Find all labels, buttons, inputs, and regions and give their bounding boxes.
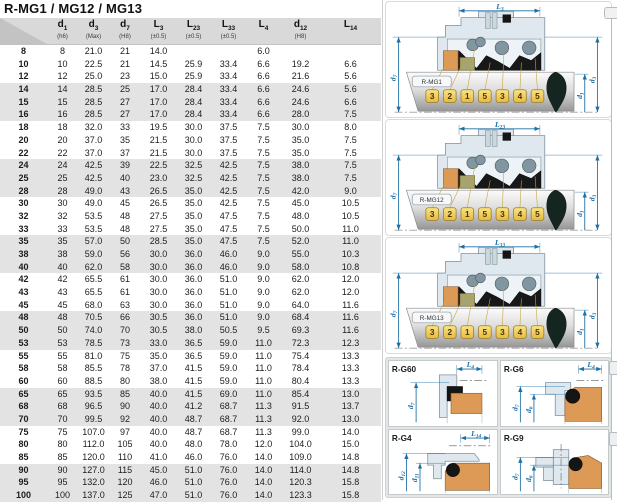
table-cell: 13.0 bbox=[320, 388, 381, 401]
table-cell: 48.7 bbox=[176, 426, 211, 439]
svg-text:5: 5 bbox=[483, 92, 488, 101]
table-cell: 120.0 bbox=[78, 451, 109, 464]
table-cell: 85 bbox=[47, 451, 78, 464]
table-cell: 35 bbox=[109, 134, 141, 147]
table-cell: 23 bbox=[109, 70, 141, 83]
table-cell: 38.0 bbox=[141, 375, 176, 388]
row-size-header: 12 bbox=[0, 70, 47, 83]
table-cell: 10.5 bbox=[320, 210, 381, 223]
table-cell: 26.5 bbox=[141, 185, 176, 198]
table-cell: 9.0 bbox=[246, 299, 281, 312]
table-cell: 12 bbox=[47, 70, 78, 83]
table-cell: 9.0 bbox=[246, 273, 281, 286]
table-cell: 6.0 bbox=[246, 45, 281, 58]
table-cell: 11.0 bbox=[246, 388, 281, 401]
table-cell: 15.8 bbox=[320, 476, 381, 489]
table-cell: 32 bbox=[47, 210, 78, 223]
svg-text:4: 4 bbox=[518, 210, 523, 219]
diagrams-section: R-MG1 3 2 1 5 3 4 5 L3 d7 bbox=[384, 0, 617, 500]
table-cell: 41.5 bbox=[176, 375, 211, 388]
table-cell: 11.3 bbox=[246, 400, 281, 413]
table-cell: 36.5 bbox=[176, 337, 211, 350]
table-cell: 120 bbox=[109, 476, 141, 489]
table-cell: 24 bbox=[47, 159, 78, 172]
set-screw bbox=[503, 15, 511, 23]
table-cell: 28.4 bbox=[176, 96, 211, 109]
table-cell: 48.0 bbox=[176, 438, 211, 451]
table-cell: 49.0 bbox=[78, 197, 109, 210]
table-cell: 43 bbox=[47, 286, 78, 299]
table-cell: 85.5 bbox=[78, 362, 109, 375]
table-row: 9595132.012046.051.076.014.0120.315.8 bbox=[0, 476, 381, 489]
column-header-d3: d3(Max) bbox=[78, 18, 109, 45]
table-cell: 32.0 bbox=[78, 121, 109, 134]
table-cell: 7.5 bbox=[246, 147, 281, 160]
table-cell: 17.0 bbox=[141, 83, 176, 96]
set-screw bbox=[503, 251, 511, 259]
table-cell: 90 bbox=[47, 464, 78, 477]
table-cell: 63 bbox=[109, 299, 141, 312]
table-cell: 120.3 bbox=[281, 476, 320, 489]
table-cell: 53.5 bbox=[78, 223, 109, 236]
table-cell: 85 bbox=[109, 388, 141, 401]
table-row: 323253.54827.535.047.57.548.010.5 bbox=[0, 210, 381, 223]
row-size-header: 53 bbox=[0, 337, 47, 350]
table-cell: 6.6 bbox=[246, 58, 281, 71]
table-cell: 62.0 bbox=[281, 286, 320, 299]
svg-text:d3: d3 bbox=[587, 312, 597, 319]
table-cell bbox=[176, 45, 211, 58]
table-cell: 51.0 bbox=[211, 286, 246, 299]
table-cell: 46.0 bbox=[141, 476, 176, 489]
table-cell: 37.0 bbox=[78, 147, 109, 160]
table-cell: 97 bbox=[109, 426, 141, 439]
table-cell: 7.5 bbox=[246, 185, 281, 198]
table-row: 585885.57837.041.559.011.078.413.3 bbox=[0, 362, 381, 375]
row-size-header: 45 bbox=[0, 299, 47, 312]
detail-label: R-G6 bbox=[503, 365, 523, 374]
table-cell: 16 bbox=[47, 108, 78, 121]
table-cell: 78 bbox=[109, 362, 141, 375]
table-cell: 14.0 bbox=[246, 451, 281, 464]
table-cell: 15 bbox=[47, 96, 78, 109]
table-cell: 21.5 bbox=[141, 147, 176, 160]
table-cell: 46.0 bbox=[211, 248, 246, 261]
svg-text:L33: L33 bbox=[494, 238, 505, 248]
table-cell: 35.0 bbox=[281, 134, 320, 147]
table-cell: 68 bbox=[47, 400, 78, 413]
row-size-header: 15 bbox=[0, 96, 47, 109]
table-cell: 76.0 bbox=[211, 451, 246, 464]
table-cell: 58 bbox=[109, 261, 141, 274]
table-cell: 53.5 bbox=[78, 210, 109, 223]
row-size-header: 20 bbox=[0, 134, 47, 147]
row-size-header: 60 bbox=[0, 375, 47, 388]
table-cell: 13.3 bbox=[320, 362, 381, 375]
row-size-header: 80 bbox=[0, 438, 47, 451]
table-row: 656593.58540.041.569.011.085.413.0 bbox=[0, 388, 381, 401]
seat-detail-diagrams: R-G60 L4 d7 bbox=[385, 357, 612, 498]
svg-text:4: 4 bbox=[518, 92, 523, 101]
item-number-tags: 3 2 1 5 3 4 5 bbox=[426, 326, 544, 339]
table-cell: 21 bbox=[109, 58, 141, 71]
table-cell: 6.6 bbox=[246, 96, 281, 109]
table-cell: 45.0 bbox=[141, 464, 176, 477]
table-cell: 14.0 bbox=[246, 476, 281, 489]
table-cell: 88.5 bbox=[78, 375, 109, 388]
table-row: 505074.07030.538.050.59.569.311.6 bbox=[0, 324, 381, 337]
table-cell: 80 bbox=[47, 438, 78, 451]
table-row: 101022.52114.525.933.46.619.26.6 bbox=[0, 58, 381, 71]
svg-text:d7: d7 bbox=[406, 402, 416, 409]
table-cell: 6.6 bbox=[246, 108, 281, 121]
row-size-header: 24 bbox=[0, 159, 47, 172]
table-cell: 37.5 bbox=[211, 147, 246, 160]
table-cell: 25.0 bbox=[78, 70, 109, 83]
column-header-L14: L14 bbox=[320, 18, 381, 45]
table-cell: 13.7 bbox=[320, 400, 381, 413]
table-cell: 50.5 bbox=[211, 324, 246, 337]
table-cell: 9.0 bbox=[246, 261, 281, 274]
svg-text:d3: d3 bbox=[587, 76, 597, 83]
table-row: 535378.57333.036.559.011.072.312.3 bbox=[0, 337, 381, 350]
table-cell: 33 bbox=[109, 121, 141, 134]
table-cell: 33.4 bbox=[211, 108, 246, 121]
table-cell: 38.0 bbox=[176, 324, 211, 337]
table-cell: 19.2 bbox=[281, 58, 320, 71]
dim-right-d3: d3 bbox=[587, 273, 597, 348]
table-cell: 60 bbox=[47, 375, 78, 388]
table-row: 242442.53922.532.542.57.538.07.5 bbox=[0, 159, 381, 172]
svg-text:d11: d11 bbox=[410, 472, 420, 481]
dim-right-d3: d3 bbox=[587, 155, 597, 230]
svg-text:d1: d1 bbox=[575, 328, 585, 335]
item-number-tags: 3 2 1 5 3 4 5 bbox=[426, 90, 544, 103]
svg-text:5: 5 bbox=[483, 210, 488, 219]
table-cell: 13.3 bbox=[320, 375, 381, 388]
table-cell: 13.3 bbox=[320, 350, 381, 363]
table-cell: 12.0 bbox=[320, 286, 381, 299]
table-cell: 12.3 bbox=[320, 337, 381, 350]
table-cell: 70.5 bbox=[78, 311, 109, 324]
table-cell: 132.0 bbox=[78, 476, 109, 489]
table-cell: 30.0 bbox=[176, 147, 211, 160]
table-cell: 85.4 bbox=[281, 388, 320, 401]
table-cell: 42.5 bbox=[211, 159, 246, 172]
table-row: 353557.05028.535.047.57.552.011.0 bbox=[0, 235, 381, 248]
table-cell: 65 bbox=[47, 388, 78, 401]
table-cell: 68.0 bbox=[78, 299, 109, 312]
row-size-header: 42 bbox=[0, 273, 47, 286]
row-size-header: 58 bbox=[0, 362, 47, 375]
table-cell: 92 bbox=[109, 413, 141, 426]
adjacent-panel-tab bbox=[604, 7, 617, 19]
row-size-header: 55 bbox=[0, 350, 47, 363]
table-cell: 7.5 bbox=[320, 134, 381, 147]
row-size-header: 32 bbox=[0, 210, 47, 223]
table-cell: 6.6 bbox=[246, 70, 281, 83]
table-row: 181832.03319.530.037.57.530.08.0 bbox=[0, 121, 381, 134]
rg6-diagram: R-G6 L4 d7 bbox=[501, 361, 609, 426]
table-cell: 14 bbox=[47, 83, 78, 96]
table-cell: 35.0 bbox=[176, 223, 211, 236]
table-cell: 92.0 bbox=[281, 413, 320, 426]
row-size-header: 28 bbox=[0, 185, 47, 198]
table-cell: 75.4 bbox=[281, 350, 320, 363]
table-cell: 35.0 bbox=[176, 210, 211, 223]
table-cell: 37 bbox=[109, 147, 141, 160]
table-cell: 41.5 bbox=[176, 388, 211, 401]
table-cell: 35.0 bbox=[176, 185, 211, 198]
dim-left: d7 bbox=[389, 273, 399, 348]
detail-panel-rg60: R-G60 L4 d7 bbox=[388, 360, 498, 427]
table-row: 222237.03721.530.037.57.535.07.5 bbox=[0, 147, 381, 160]
detail-panel-rg9: R-G9 d7 bbox=[500, 429, 610, 496]
table-cell: 42.5 bbox=[211, 185, 246, 198]
table-cell: 7.5 bbox=[246, 235, 281, 248]
table-cell: 42.5 bbox=[78, 172, 109, 185]
table-cell: 59.0 bbox=[211, 350, 246, 363]
table-cell: 35.0 bbox=[176, 235, 211, 248]
o-ring bbox=[446, 463, 460, 477]
table-row: 404062.05830.036.046.09.058.010.8 bbox=[0, 261, 381, 274]
svg-text:5: 5 bbox=[535, 210, 540, 219]
svg-text:2: 2 bbox=[447, 92, 452, 101]
table-cell: 26.5 bbox=[141, 197, 176, 210]
set-screw bbox=[503, 133, 511, 141]
catalog-page: R-MG1 / MG12 / MG13 d1(h6)d3(Max)d7(H8)L… bbox=[0, 0, 617, 500]
table-cell: 104.0 bbox=[281, 438, 320, 451]
table-cell: 19.5 bbox=[141, 121, 176, 134]
table-cell: 114.0 bbox=[281, 464, 320, 477]
table-cell: 37.5 bbox=[211, 134, 246, 147]
row-size-header: 95 bbox=[0, 476, 47, 489]
adjacent-panel-nub bbox=[609, 432, 617, 446]
table-cell: 41.2 bbox=[176, 400, 211, 413]
table-cell: 36.0 bbox=[176, 286, 211, 299]
table-cell: 90 bbox=[109, 400, 141, 413]
table-cell: 11.3 bbox=[246, 413, 281, 426]
table-cell: 8.0 bbox=[320, 121, 381, 134]
table-cell: 51.0 bbox=[211, 299, 246, 312]
table-cell: 55.0 bbox=[281, 248, 320, 261]
table-cell: 59.0 bbox=[211, 337, 246, 350]
detail-panel-rg6: R-G6 L4 d7 bbox=[500, 360, 610, 427]
table-cell: 96.5 bbox=[78, 400, 109, 413]
table-cell: 30.0 bbox=[176, 134, 211, 147]
table-cell: 22 bbox=[47, 147, 78, 160]
table-row: 454568.06330.036.051.09.064.011.6 bbox=[0, 299, 381, 312]
table-cell: 28.4 bbox=[176, 83, 211, 96]
table-cell: 35 bbox=[47, 235, 78, 248]
dim-left: d7 bbox=[389, 37, 399, 112]
table-row: 7575107.09740.048.768.711.399.014.0 bbox=[0, 426, 381, 439]
seal-cross-section: R-MG13 3 2 1 5 3 4 5 L33 d7 bbox=[386, 238, 611, 353]
table-cell: 12.0 bbox=[320, 273, 381, 286]
table-row: 282849.04326.535.042.57.542.09.0 bbox=[0, 185, 381, 198]
seal-diagram-panel: R-MG1 3 2 1 5 3 4 5 L3 d7 bbox=[385, 1, 612, 118]
table-cell: 41.5 bbox=[176, 362, 211, 375]
table-cell: 10.5 bbox=[320, 197, 381, 210]
table-cell: 7.5 bbox=[246, 172, 281, 185]
detail-label: R-G60 bbox=[392, 365, 417, 374]
seal-cross-section: R-MG1 3 2 1 5 3 4 5 L3 d7 bbox=[386, 2, 611, 117]
row-size-header: 75 bbox=[0, 426, 47, 439]
table-cell: 47.5 bbox=[211, 210, 246, 223]
table-cell: 37.0 bbox=[78, 134, 109, 147]
table-cell: 35.0 bbox=[141, 350, 176, 363]
table-cell: 36.0 bbox=[176, 273, 211, 286]
row-size-header: 18 bbox=[0, 121, 47, 134]
table-row: 9090127.011545.051.076.014.0114.014.8 bbox=[0, 464, 381, 477]
table-cell: 33.4 bbox=[211, 96, 246, 109]
column-header-d12: d12(H8) bbox=[281, 18, 320, 45]
detail-label: R-G9 bbox=[503, 433, 523, 442]
table-row: 555581.07535.036.559.011.075.413.3 bbox=[0, 350, 381, 363]
table-cell: 33.0 bbox=[141, 337, 176, 350]
spec-table-section: R-MG1 / MG12 / MG13 d1(h6)d3(Max)d7(H8)L… bbox=[0, 0, 383, 500]
table-cell: 70 bbox=[109, 324, 141, 337]
table-cell: 65.5 bbox=[78, 273, 109, 286]
svg-text:5: 5 bbox=[483, 328, 488, 337]
seat-ring bbox=[451, 393, 482, 413]
svg-text:5: 5 bbox=[535, 92, 540, 101]
table-cell: 17.0 bbox=[141, 108, 176, 121]
svg-text:3: 3 bbox=[430, 210, 435, 219]
table-cell: 7.5 bbox=[320, 172, 381, 185]
table-cell: 40.0 bbox=[141, 388, 176, 401]
rg9-diagram: R-G9 d7 bbox=[501, 430, 609, 495]
svg-text:3: 3 bbox=[430, 92, 435, 101]
table-cell: 30.0 bbox=[141, 299, 176, 312]
table-cell: 58 bbox=[47, 362, 78, 375]
table-row: 141428.52517.028.433.46.624.65.6 bbox=[0, 83, 381, 96]
table-cell: 32.5 bbox=[176, 172, 211, 185]
table-cell: 30.0 bbox=[141, 248, 176, 261]
row-size-header: 48 bbox=[0, 311, 47, 324]
table-cell: 27.5 bbox=[141, 210, 176, 223]
dim-right-d3: d3 bbox=[587, 37, 597, 112]
table-cell: 51.0 bbox=[176, 476, 211, 489]
table-cell: 28.5 bbox=[78, 108, 109, 121]
table-cell: 7.5 bbox=[246, 134, 281, 147]
table-cell: 11.0 bbox=[246, 375, 281, 388]
table-cell: 47.5 bbox=[211, 223, 246, 236]
table-cell: 56 bbox=[109, 248, 141, 261]
table-cell: 30.5 bbox=[141, 324, 176, 337]
table-cell: 30.0 bbox=[141, 286, 176, 299]
table-cell: 10.8 bbox=[320, 261, 381, 274]
table-cell: 59.0 bbox=[78, 248, 109, 261]
table-cell: 36.0 bbox=[176, 299, 211, 312]
table-cell: 22.5 bbox=[78, 58, 109, 71]
column-header-L3: L3(±0.5) bbox=[141, 18, 176, 45]
table-row: 161628.52717.028.433.46.628.07.5 bbox=[0, 108, 381, 121]
table-cell: 38 bbox=[47, 248, 78, 261]
table-cell: 78.4 bbox=[281, 362, 320, 375]
svg-text:5: 5 bbox=[535, 328, 540, 337]
table-cell: 68.7 bbox=[211, 400, 246, 413]
table-cell: 14.0 bbox=[141, 45, 176, 58]
table-cell: 11.0 bbox=[320, 235, 381, 248]
table-cell: 95 bbox=[47, 476, 78, 489]
table-cell: 69.3 bbox=[281, 324, 320, 337]
table-cell: 5.6 bbox=[320, 70, 381, 83]
table-cell: 39 bbox=[109, 159, 141, 172]
table-cell: 7.5 bbox=[246, 223, 281, 236]
table-cell: 80.4 bbox=[281, 375, 320, 388]
table-cell: 14.8 bbox=[320, 451, 381, 464]
table-cell: 68.7 bbox=[211, 426, 246, 439]
table-cell: 10 bbox=[47, 58, 78, 71]
table-cell: 24.6 bbox=[281, 83, 320, 96]
table-cell: 7.5 bbox=[246, 210, 281, 223]
page-title: R-MG1 / MG12 / MG13 bbox=[4, 1, 142, 16]
row-size-header: 90 bbox=[0, 464, 47, 477]
table-cell: 7.5 bbox=[320, 159, 381, 172]
table-cell: 47.5 bbox=[211, 235, 246, 248]
table-cell: 62.0 bbox=[78, 261, 109, 274]
table-header: d1(h6)d3(Max)d7(H8)L3(±0.5)L23(±0.5)L33(… bbox=[0, 18, 381, 45]
table-cell: 48 bbox=[109, 210, 141, 223]
table-cell bbox=[211, 45, 246, 58]
table-cell: 11.0 bbox=[246, 350, 281, 363]
table-cell: 20 bbox=[47, 134, 78, 147]
table-cell: 12.0 bbox=[246, 438, 281, 451]
table-cell: 40 bbox=[109, 172, 141, 185]
table-cell: 42.5 bbox=[211, 197, 246, 210]
table-cell: 9.0 bbox=[246, 248, 281, 261]
svg-text:d7: d7 bbox=[389, 74, 399, 81]
table-cell: 48.7 bbox=[176, 413, 211, 426]
table-cell: 40.0 bbox=[141, 413, 176, 426]
table-row: 8080112.010540.048.078.012.0104.015.0 bbox=[0, 438, 381, 451]
table-row: 8821.02114.06.0 bbox=[0, 45, 381, 58]
svg-text:d12: d12 bbox=[397, 470, 407, 480]
table-cell: 40.0 bbox=[141, 400, 176, 413]
table-row: 333353.54827.535.047.57.550.011.0 bbox=[0, 223, 381, 236]
item-number-tags: 3 2 1 5 3 4 5 bbox=[426, 208, 544, 221]
table-cell: 22.5 bbox=[141, 159, 176, 172]
seal-name-label: R-MG13 bbox=[420, 315, 444, 322]
seal-diagrams: R-MG1 3 2 1 5 3 4 5 L3 d7 bbox=[384, 1, 617, 354]
table-cell: 27 bbox=[109, 96, 141, 109]
table-row: 383859.05630.036.046.09.055.010.3 bbox=[0, 248, 381, 261]
table-row: 707099.59240.048.768.711.392.013.0 bbox=[0, 413, 381, 426]
table-cell: 25 bbox=[47, 172, 78, 185]
table-cell: 33.4 bbox=[211, 70, 246, 83]
table-cell: 61 bbox=[109, 286, 141, 299]
svg-text:4: 4 bbox=[518, 328, 523, 337]
svg-text:d6: d6 bbox=[524, 406, 534, 413]
table-cell: 14.0 bbox=[246, 464, 281, 477]
table-cell: 9.5 bbox=[246, 324, 281, 337]
table-cell: 37.0 bbox=[141, 362, 176, 375]
table-cell: 7.5 bbox=[320, 147, 381, 160]
row-size-header: 16 bbox=[0, 108, 47, 121]
table-cell: 25.9 bbox=[176, 58, 211, 71]
row-size-header: 22 bbox=[0, 147, 47, 160]
svg-text:d7: d7 bbox=[389, 192, 399, 199]
table-cell: 37.5 bbox=[211, 121, 246, 134]
table-cell: 11.0 bbox=[246, 337, 281, 350]
table-cell: 46.0 bbox=[176, 451, 211, 464]
table-cell: 32.5 bbox=[176, 159, 211, 172]
column-header-d1: d1(h6) bbox=[47, 18, 78, 45]
table-cell: 11.6 bbox=[320, 311, 381, 324]
table-cell: 51.0 bbox=[176, 464, 211, 477]
table-cell: 6.6 bbox=[320, 58, 381, 71]
